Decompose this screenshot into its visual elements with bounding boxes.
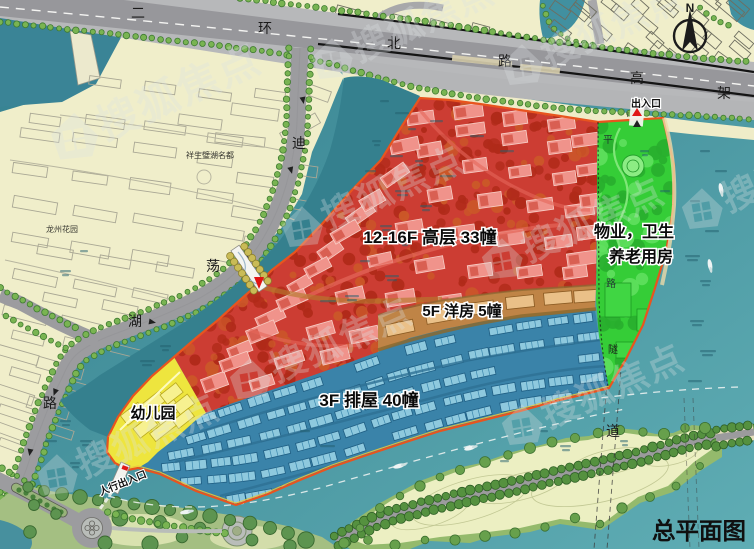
svg-text:路: 路	[43, 395, 57, 411]
svg-text:出入口: 出入口	[631, 97, 661, 110]
svg-text:12-16F 高层 33幢: 12-16F 高层 33幢	[363, 227, 496, 247]
svg-text:环: 环	[258, 20, 272, 36]
svg-text:架: 架	[717, 85, 731, 101]
svg-text:祥生璧湖名都: 祥生璧湖名都	[186, 150, 234, 160]
svg-text:总平面图: 总平面图	[652, 517, 746, 544]
svg-text:道: 道	[606, 423, 620, 439]
svg-text:迪: 迪	[292, 135, 306, 151]
svg-text:隧: 隧	[608, 343, 618, 356]
svg-text:物业，卫生: 物业，卫生	[594, 222, 674, 241]
svg-text:湖: 湖	[128, 313, 142, 329]
svg-text:5F 洋房 5幢: 5F 洋房 5幢	[422, 302, 501, 320]
svg-text:路: 路	[606, 277, 616, 290]
svg-text:荡: 荡	[206, 258, 220, 274]
svg-text:幼儿园: 幼儿园	[130, 404, 175, 422]
svg-text:二: 二	[131, 5, 145, 21]
svg-text:高: 高	[630, 70, 644, 86]
svg-text:龙州花园: 龙州花园	[46, 224, 78, 234]
svg-text:3F 排屋 40幢: 3F 排屋 40幢	[319, 390, 418, 410]
svg-text:养老用房: 养老用房	[608, 247, 673, 266]
svg-text:平: 平	[603, 135, 613, 146]
